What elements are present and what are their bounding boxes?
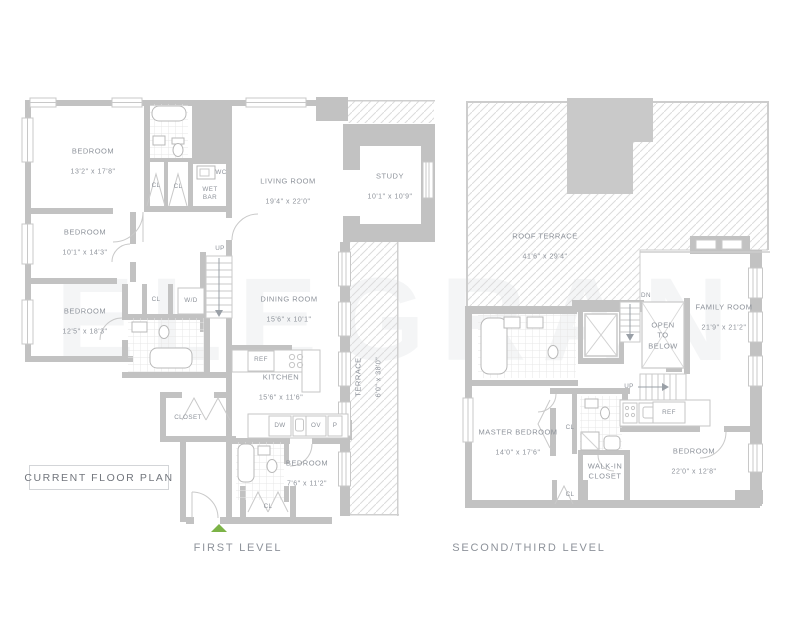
label-cl-2: CL: [174, 183, 183, 191]
label-dn: DN: [641, 292, 651, 300]
room-label-dining-room: DINING ROOM 15'6" x 10'1": [260, 283, 317, 338]
room-label-living-room: LIVING ROOM 19'4" x 22'0": [260, 165, 316, 220]
room-label-open-to-below: OPEN TO BELOW: [648, 311, 678, 360]
level2-roof-terrace: [467, 98, 768, 306]
label-wet-bar: WET BAR: [202, 186, 217, 202]
label-ref-l2: REF: [662, 409, 676, 417]
label-up-l2: UP: [624, 383, 634, 391]
room-label-terrace: TERRACE 6'0" x 38'0": [342, 357, 397, 398]
current-floor-plan-badge: CURRENT FLOOR PLAN: [29, 465, 169, 490]
caption-first-level: FIRST LEVEL: [194, 542, 283, 554]
label-wc: WC: [215, 169, 226, 177]
label-cl-1: CL: [152, 182, 161, 190]
room-label-family-room: FAMILY ROOM 21'9" x 21'2": [696, 291, 753, 346]
floor-plan-drawing: [0, 0, 800, 640]
sink-icon: [153, 136, 165, 145]
floor-plan-canvas: ELEGRAN: [0, 0, 800, 640]
room-label-roof-terrace: ROOF TERRACE 41'6" x 29'4": [512, 220, 577, 275]
label-ref-l1: REF: [254, 356, 268, 364]
room-label-bedroom-5: BEDROOM 22'0" x 12'8": [672, 435, 717, 490]
room-label-kitchen: KITCHEN 15'6" x 11'6": [259, 361, 303, 416]
label-ov: OV: [311, 422, 321, 430]
label-cl-4: CL: [264, 503, 273, 511]
label-p: P: [333, 422, 338, 430]
room-label-master-bedroom: MASTER BEDROOM 14'0" x 17'6": [478, 416, 557, 471]
room-label-bedroom-4: BEDROOM 7'6" x 11'2": [286, 447, 328, 502]
label-closet: CLOSET: [174, 414, 202, 422]
label-up-l1: UP: [215, 245, 225, 253]
stairs-down: [620, 302, 640, 342]
label-cl-3: CL: [152, 296, 161, 304]
room-label-bedroom-2: BEDROOM 10'1" x 14'3": [63, 216, 108, 271]
level1-stairs-up: [206, 256, 232, 318]
room-label-bedroom-1: BEDROOM 13'2" x 17'8": [71, 135, 116, 190]
caption-second-third-level: SECOND/THIRD LEVEL: [452, 542, 605, 554]
entry-marker-triangle: [211, 524, 227, 532]
core-block: [567, 98, 653, 142]
label-cl-6: CL: [566, 491, 575, 499]
room-label-bedroom-3: BEDROOM 12'5" x 18'3": [63, 295, 108, 350]
label-dw: DW: [274, 422, 285, 430]
label-cl-5: CL: [566, 424, 575, 432]
toilet-icon: [173, 144, 183, 157]
stairs-up: [638, 374, 686, 400]
tub-icon: [481, 318, 507, 374]
room-label-study: STUDY 10'1" x 10'9": [368, 160, 413, 215]
tub-icon: [152, 106, 186, 121]
label-wd: W/D: [184, 297, 197, 305]
room-label-walk-in-closet: WALK-IN CLOSET: [588, 453, 622, 492]
